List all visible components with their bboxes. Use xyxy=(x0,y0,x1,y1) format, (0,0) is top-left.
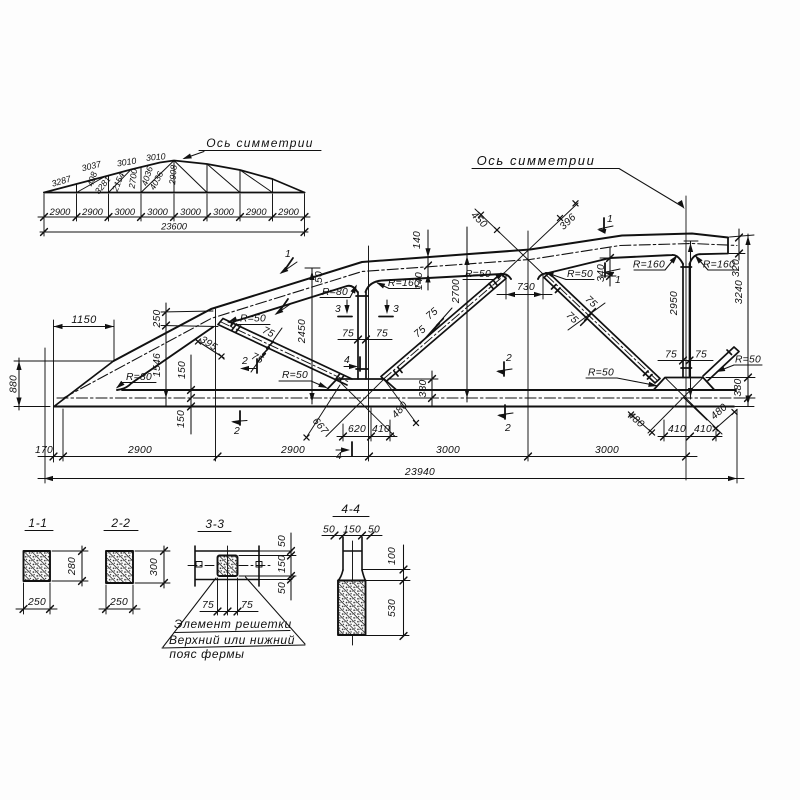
svg-text:50: 50 xyxy=(277,582,288,594)
svg-text:Ось симметрии: Ось симметрии xyxy=(477,153,596,168)
svg-text:4-4: 4-4 xyxy=(341,502,360,516)
svg-text:2-2: 2-2 xyxy=(110,516,130,530)
svg-text:150: 150 xyxy=(176,410,187,428)
svg-text:3000: 3000 xyxy=(180,207,202,217)
svg-text:R=50: R=50 xyxy=(282,370,308,381)
svg-text:R=50: R=50 xyxy=(588,368,614,379)
svg-text:50: 50 xyxy=(277,535,288,547)
svg-text:пояс фермы: пояс фермы xyxy=(169,647,244,661)
svg-text:3240: 3240 xyxy=(734,280,745,304)
svg-text:23600: 23600 xyxy=(160,222,188,232)
svg-text:R=160: R=160 xyxy=(633,260,665,271)
svg-text:2900: 2900 xyxy=(277,207,300,217)
svg-text:75: 75 xyxy=(342,329,354,340)
svg-text:Элемент решетки: Элемент решетки xyxy=(174,617,292,631)
svg-text:620: 620 xyxy=(348,424,366,435)
svg-text:3000: 3000 xyxy=(114,207,136,217)
svg-text:2: 2 xyxy=(233,426,240,437)
svg-text:75: 75 xyxy=(665,350,677,361)
svg-text:410: 410 xyxy=(668,424,686,435)
svg-text:380: 380 xyxy=(418,379,429,397)
svg-text:1: 1 xyxy=(615,275,621,286)
svg-text:75: 75 xyxy=(260,325,276,340)
svg-text:3000: 3000 xyxy=(147,207,169,217)
svg-text:140: 140 xyxy=(412,231,423,249)
svg-text:300: 300 xyxy=(149,558,160,576)
svg-text:Верхний или нижний: Верхний или нижний xyxy=(169,633,295,647)
svg-text:380: 380 xyxy=(733,378,744,396)
svg-text:R=80: R=80 xyxy=(322,287,348,298)
svg-text:75: 75 xyxy=(241,600,253,611)
svg-text:100: 100 xyxy=(387,547,398,565)
svg-text:23940: 23940 xyxy=(404,467,435,478)
svg-text:280: 280 xyxy=(67,557,78,576)
svg-text:1150: 1150 xyxy=(71,314,97,326)
svg-text:1: 1 xyxy=(607,214,613,225)
svg-text:3000: 3000 xyxy=(595,445,619,456)
svg-text:170: 170 xyxy=(35,445,53,456)
svg-text:250: 250 xyxy=(27,597,46,608)
svg-text:250: 250 xyxy=(109,597,128,608)
svg-text:75: 75 xyxy=(376,329,388,340)
svg-text:3: 3 xyxy=(393,304,399,315)
svg-text:880: 880 xyxy=(9,375,20,393)
svg-text:75: 75 xyxy=(424,306,440,322)
svg-text:50: 50 xyxy=(368,525,380,536)
svg-text:2700: 2700 xyxy=(451,279,462,304)
svg-text:2700: 2700 xyxy=(127,168,140,190)
svg-text:2450: 2450 xyxy=(297,319,308,344)
svg-text:2900: 2900 xyxy=(280,445,305,456)
svg-text:R=50: R=50 xyxy=(465,269,491,280)
svg-text:3-3: 3-3 xyxy=(205,517,224,531)
svg-text:R=50: R=50 xyxy=(567,269,593,280)
svg-text:2900: 2900 xyxy=(49,207,72,217)
svg-text:2900: 2900 xyxy=(81,207,104,217)
svg-text:75: 75 xyxy=(202,600,214,611)
svg-text:3037: 3037 xyxy=(81,159,103,174)
svg-text:150: 150 xyxy=(343,525,361,536)
svg-text:1-1: 1-1 xyxy=(28,516,47,530)
svg-text:480: 480 xyxy=(625,410,646,430)
svg-text:410: 410 xyxy=(694,424,712,435)
svg-text:3010: 3010 xyxy=(116,156,137,169)
svg-text:2900: 2900 xyxy=(245,207,268,217)
svg-text:250: 250 xyxy=(152,309,163,328)
svg-text:480: 480 xyxy=(390,400,410,421)
svg-text:3: 3 xyxy=(335,304,341,315)
svg-text:450: 450 xyxy=(468,210,489,230)
svg-text:140: 140 xyxy=(414,272,425,290)
svg-text:50: 50 xyxy=(323,525,335,536)
svg-text:410: 410 xyxy=(372,424,390,435)
svg-text:730: 730 xyxy=(517,282,535,293)
svg-text:396: 396 xyxy=(558,212,579,232)
svg-text:530: 530 xyxy=(387,599,398,617)
svg-text:2908: 2908 xyxy=(167,164,179,185)
svg-text:3000: 3000 xyxy=(213,207,235,217)
svg-text:320: 320 xyxy=(731,259,742,277)
svg-text:75: 75 xyxy=(564,310,580,326)
svg-text:3000: 3000 xyxy=(436,445,460,456)
svg-text:1: 1 xyxy=(285,249,291,260)
svg-text:50: 50 xyxy=(314,271,325,283)
svg-text:Ось симметрии: Ось симметрии xyxy=(206,136,313,150)
svg-text:R=80: R=80 xyxy=(126,372,152,383)
svg-text:2900: 2900 xyxy=(127,445,152,456)
svg-text:1546: 1546 xyxy=(152,353,163,377)
svg-text:3010: 3010 xyxy=(146,151,166,163)
svg-text:2950: 2950 xyxy=(669,291,680,316)
svg-text:R=50: R=50 xyxy=(240,314,266,325)
svg-text:150: 150 xyxy=(177,361,188,379)
svg-text:150: 150 xyxy=(277,555,288,573)
svg-text:2: 2 xyxy=(505,353,512,364)
svg-text:2: 2 xyxy=(504,423,511,434)
svg-text:75: 75 xyxy=(695,350,707,361)
svg-text:2: 2 xyxy=(241,356,248,367)
